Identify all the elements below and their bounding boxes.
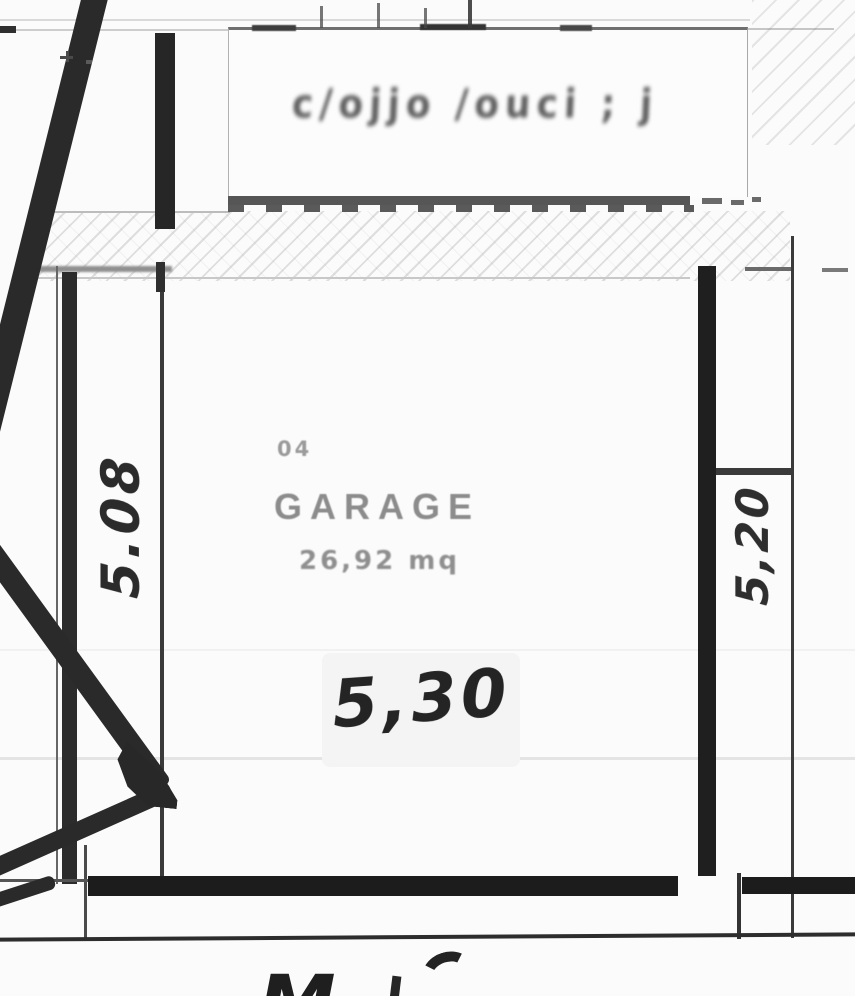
dimension-left: 5.08 — [94, 424, 150, 628]
wall-right-outer-line — [791, 236, 794, 938]
tick-mark — [377, 3, 380, 28]
ink-dot — [86, 60, 92, 64]
scan-streak — [0, 649, 855, 651]
scan-streak — [0, 19, 750, 21]
wall-top-dash — [822, 268, 848, 272]
boundary-line-bottom — [0, 932, 855, 941]
wall-hatch-smudge — [22, 266, 172, 272]
room-area-label: 26,92 mq — [299, 546, 460, 576]
scan-streak — [0, 29, 232, 31]
tick-mark — [468, 0, 472, 28]
plus-mark — [66, 51, 69, 62]
tick-mark — [424, 8, 427, 28]
wall-vertical-top-left — [155, 33, 175, 229]
ragged-dash — [731, 200, 744, 205]
dimension-right: 5,20 — [731, 453, 777, 636]
room-name-label: GARAGE — [274, 486, 480, 528]
ink-blob — [420, 24, 486, 30]
partial-handwritten-stroke — [417, 948, 479, 996]
ragged-dash — [702, 198, 722, 204]
wall-left-outer-line — [56, 266, 58, 884]
partial-handwritten-letter: M — [258, 960, 336, 996]
edge-mark — [0, 26, 16, 33]
wall-bottom — [88, 876, 678, 896]
dimension-bottom: 5,30 — [330, 654, 514, 743]
wall-hatch-top-right — [752, 0, 855, 145]
tick-mark — [320, 6, 323, 28]
ink-blob — [252, 25, 296, 31]
pillar-edge-line — [737, 873, 741, 939]
wall-right — [698, 266, 716, 876]
room-number-label: 04 — [277, 437, 312, 461]
ragged-dash — [752, 197, 761, 202]
wall-hatch-edge — [30, 211, 230, 213]
wall-bottom-right — [742, 877, 855, 894]
wall-hatch-edge — [30, 277, 690, 279]
bottom-caption-clipped: M — [240, 948, 540, 996]
ragged-wall-line — [228, 196, 690, 205]
wall-left — [62, 272, 77, 884]
wall-top-dash — [745, 267, 791, 271]
illegible-header-text: c/ojjo /ouci ; j — [291, 82, 713, 128]
wall-stub-left-bottom — [84, 845, 87, 940]
floor-plan-scan: c/ojjo /ouci ; j 04 GARAGE 26,92 mq 5,30… — [0, 0, 855, 996]
partial-handwritten-stroke — [388, 976, 402, 996]
wall-left-inner-cap — [156, 262, 165, 292]
ink-blob — [560, 25, 592, 31]
